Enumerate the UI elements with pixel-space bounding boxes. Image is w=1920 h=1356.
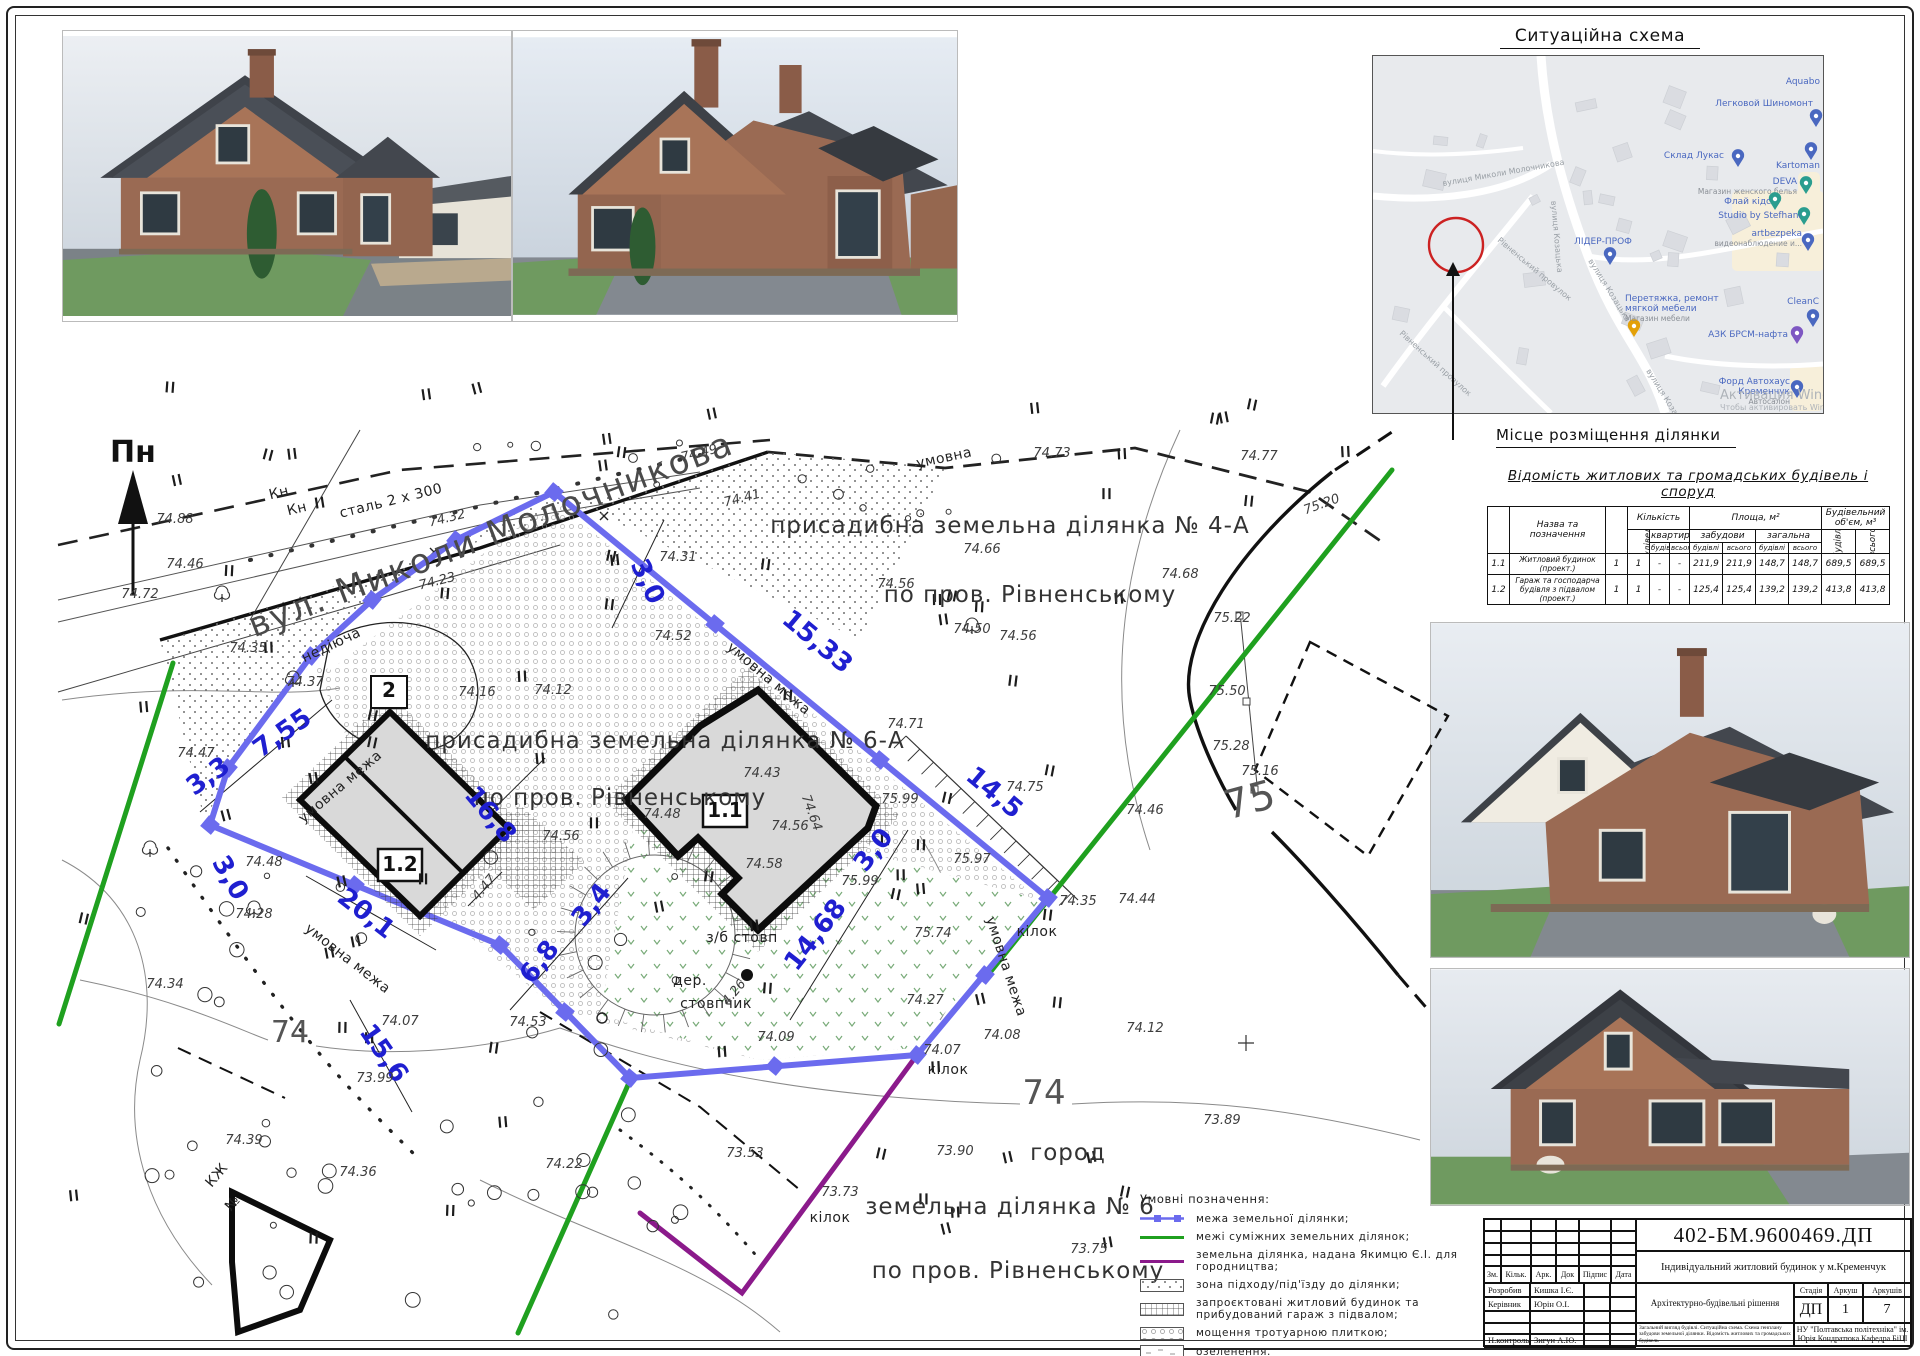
plan-label: 73.53 <box>726 1146 763 1161</box>
plan-label: 73.99 <box>356 1071 393 1086</box>
tb-name <box>1530 1323 1584 1334</box>
plan-label: 74.34 <box>146 977 183 992</box>
title-block-cell <box>1610 1346 1636 1348</box>
legend-item: межі суміжних земель­них ділянок; <box>1140 1231 1470 1244</box>
plan-label: 75.99 <box>881 792 918 807</box>
tb-stage-label: Стадія <box>1794 1283 1828 1297</box>
legend-item: мощення тротуарною плиткою; <box>1140 1327 1470 1340</box>
plan-label: 75.22 <box>1213 611 1250 626</box>
tb-stage-value: ДП <box>1794 1297 1828 1323</box>
legend-label: зона підходу/під'їзду до ділянки; <box>1196 1279 1400 1291</box>
tb-header-0: Зм. <box>1484 1266 1501 1283</box>
survey-cross <box>1238 1035 1254 1051</box>
plan-label: 75.20 <box>1302 491 1342 518</box>
plan-label: 74.44 <box>1118 892 1155 907</box>
tb-organization: НУ "Полтавська політехніка" ім. Юрія Кон… <box>1794 1323 1911 1346</box>
plan-label: 74.88 <box>156 512 193 527</box>
legend-symbol-stip <box>1140 1279 1184 1292</box>
title-block-cell <box>1610 1323 1636 1334</box>
plan-label: 73.73 <box>821 1185 858 1200</box>
tb-name: Зигун А.Ю. <box>1530 1334 1584 1346</box>
plan-label: 1.1 <box>707 798 742 822</box>
plan-label: 74.16 <box>458 685 495 700</box>
plan-label: 74.27 <box>906 993 944 1008</box>
plan-label: Кн <box>267 483 290 503</box>
title-block-cell <box>1584 1323 1610 1334</box>
bold-contour-75 <box>1189 472 1398 975</box>
tb-contents-note: Загальний вигляд будівлі. Ситуаційна схе… <box>1636 1323 1794 1346</box>
tb-name: Семко О.В. <box>1530 1346 1584 1348</box>
tb-sheet-label: Аркуш <box>1828 1283 1863 1297</box>
plan-label: 74.09 <box>757 1030 794 1045</box>
plan-label: 74.75 <box>1006 780 1043 795</box>
plan-label: 74.50 <box>953 622 990 637</box>
drawing-sheet: Ситуаційна схема вулиця Козацькавулиця К… <box>0 0 1920 1356</box>
tb-name <box>1530 1311 1584 1323</box>
plan-label: 74.12 <box>534 683 571 698</box>
tb-role <box>1484 1311 1530 1323</box>
plan-label: 74.56 <box>877 577 914 592</box>
title-block-cell <box>1579 1255 1611 1266</box>
title-block-cell <box>1531 1219 1556 1231</box>
tb-sheets-total: 7 <box>1863 1297 1911 1323</box>
tb-section-title: Архітектурно-будівельні рішення <box>1636 1283 1794 1323</box>
title-block-cell <box>1484 1243 1501 1255</box>
plan-label: присадибна земельна ділянка № 4-А <box>770 513 1249 539</box>
legend-label: земельна ділянка, надана Якимцю Є.І. для… <box>1196 1249 1470 1273</box>
legend-label: мощення тротуарною плиткою; <box>1196 1327 1388 1339</box>
legend-symbol-purple <box>1140 1255 1184 1268</box>
tb-role <box>1484 1323 1530 1334</box>
plan-label: 73.90 <box>936 1144 973 1159</box>
title-block-cell <box>1531 1231 1556 1243</box>
plan-label: 74.53 <box>509 1015 546 1030</box>
plan-label: 74.37 <box>286 675 324 690</box>
legend-item: межа земельної ділянки; <box>1140 1212 1470 1225</box>
title-block-cell <box>1501 1255 1531 1266</box>
legend-symbol-greenery <box>1140 1345 1184 1356</box>
plan-label: город <box>1030 1140 1106 1166</box>
plan-label: кілок <box>1017 924 1058 940</box>
plan-label: 75 <box>1219 772 1280 830</box>
title-block-cell <box>1610 1283 1636 1297</box>
title-block-cell <box>1484 1219 1501 1231</box>
legend-symbol-blue <box>1140 1212 1184 1225</box>
plan-label: 74.73 <box>1033 446 1070 461</box>
title-block-cell <box>1611 1231 1636 1243</box>
tb-header-5: Дата <box>1611 1266 1636 1283</box>
plan-label: КЖ <box>202 1160 231 1190</box>
north-label: Пн <box>110 435 156 470</box>
plan-label: присадибна земельна ділянка № 6-А <box>425 728 904 754</box>
plan-label: 74 <box>1022 1073 1065 1113</box>
plan-label: 74.35 <box>1059 894 1096 909</box>
legend-label: межа земельної ділянки; <box>1196 1213 1349 1225</box>
legend-title: Умовні позначення: <box>1140 1192 1470 1206</box>
plan-label: 74.56 <box>542 829 579 844</box>
legend-item: земельна ділянка, надана Якимцю Є.І. для… <box>1140 1249 1470 1273</box>
title-block-cell <box>1484 1231 1501 1243</box>
plan-label: кілок <box>810 1210 851 1226</box>
plan-label: 74.46 <box>1126 803 1163 818</box>
plan-label: дер. <box>673 973 707 989</box>
plan-label: 74.35 <box>229 641 266 656</box>
plan-label: по пров. Рівненському <box>872 1258 1164 1284</box>
plan-label: земельна ділянка № 6 <box>865 1194 1155 1220</box>
tb-role: Розробив <box>1484 1283 1530 1297</box>
tb-header-1: Кільк. <box>1501 1266 1531 1283</box>
plan-label: Кн <box>285 499 308 519</box>
tb-sheets-label: Аркушів <box>1863 1283 1911 1297</box>
plan-label: з/б стовп <box>706 930 778 946</box>
plan-label: 1.2 <box>382 852 417 876</box>
title-block-cell <box>1584 1346 1610 1348</box>
plan-label: 74.52 <box>654 629 691 644</box>
title-block: Зм.Кільк.Арк.ДокПідписДатаРозробивКишка … <box>1483 1218 1912 1347</box>
tb-document-code: 402-БМ.9600469.ДП <box>1636 1219 1911 1251</box>
legend-item: озеленення. <box>1140 1345 1470 1356</box>
boundary-node <box>200 815 220 835</box>
plan-label: 75.28 <box>1212 739 1249 754</box>
title-block-cell <box>1579 1219 1611 1231</box>
legend-label: озеленення. <box>1196 1346 1271 1356</box>
plan-label: 74.46 <box>166 557 203 572</box>
plan-label: 74.43 <box>743 766 780 781</box>
title-block-cell <box>1579 1231 1611 1243</box>
tb-header-4: Підпис <box>1579 1266 1611 1283</box>
legend: Умовні позначення: межа земельної ділянк… <box>1140 1192 1470 1356</box>
title-block-cell <box>1556 1255 1579 1266</box>
plan-label: 75.74 <box>914 926 951 941</box>
title-block-cell <box>1584 1297 1610 1311</box>
plan-label: 74.39 <box>225 1133 262 1148</box>
legend-item: зона підходу/під'їзду до ділянки; <box>1140 1279 1470 1292</box>
title-block-cell <box>1556 1231 1579 1243</box>
plan-label: кілок <box>928 1062 969 1078</box>
legend-symbol-green <box>1140 1231 1184 1244</box>
plan-label: 73.89 <box>1203 1113 1240 1128</box>
title-block-cell <box>1611 1255 1636 1266</box>
tree-icon <box>214 586 229 602</box>
legend-symbol-grid <box>1140 1303 1184 1316</box>
plan-label: 74.07 <box>923 1043 961 1058</box>
plan-label: 74.66 <box>963 542 1000 557</box>
title-block-cell <box>1611 1243 1636 1255</box>
tb-header-3: Док <box>1556 1266 1579 1283</box>
plan-label: 74.31 <box>659 550 696 565</box>
title-block-cell <box>1531 1255 1556 1266</box>
tb-name: Кишка І.Є. <box>1530 1283 1584 1297</box>
title-block-cell <box>1610 1297 1636 1311</box>
plan-label: 74.22 <box>545 1157 582 1172</box>
neighbour-building-kzh <box>232 1192 330 1332</box>
title-block-cell <box>1556 1243 1579 1255</box>
site-plan: Пн вул. Миколи Молочниковаприсадибна зем… <box>0 0 1920 1356</box>
title-block-cell <box>1501 1231 1531 1243</box>
plan-label: стовпчик <box>680 996 752 1012</box>
north-arrow <box>118 470 148 595</box>
plan-label: 74.56 <box>999 629 1036 644</box>
tb-project-title: Індивідуальний житловий будинок у м.Крем… <box>1636 1251 1911 1283</box>
plan-label: по пров. Рівненському <box>884 582 1176 608</box>
title-block-cell <box>1610 1311 1636 1323</box>
plan-label: 2 <box>382 678 396 702</box>
tb-role: Керівник <box>1484 1297 1530 1311</box>
title-block-cell <box>1584 1311 1610 1323</box>
tb-role: Зав.кафедри <box>1484 1346 1530 1348</box>
plan-label: 74 <box>271 1015 309 1050</box>
plan-label: 75.97 <box>953 852 991 867</box>
plan-label: 74.08 <box>983 1028 1020 1043</box>
legend-label: межі суміжних земель­них ділянок; <box>1196 1231 1410 1243</box>
concrete-post <box>741 969 753 981</box>
plan-label: 74.48 <box>245 855 282 870</box>
bold-contour-dashed <box>1335 428 1430 1012</box>
title-block-cell <box>1611 1219 1636 1231</box>
plan-label: 74.58 <box>745 857 782 872</box>
plan-label: 74.77 <box>1240 449 1278 464</box>
tree-icon <box>142 841 157 857</box>
title-block-cell <box>1501 1219 1531 1231</box>
plan-label: 74.36 <box>339 1165 376 1180</box>
legend-label: запроєктовані житловий будинок та прибуд… <box>1196 1297 1470 1321</box>
title-block-cell <box>1556 1219 1579 1231</box>
title-block-cell <box>1531 1243 1556 1255</box>
legend-item: запроєктовані житловий будинок та прибуд… <box>1140 1297 1470 1321</box>
plan-label: 74.71 <box>887 717 924 732</box>
title-block-cell <box>1579 1243 1611 1255</box>
plan-label: 74.28 <box>235 907 272 922</box>
title-block-cell <box>1584 1334 1610 1346</box>
plan-label: 74.47 <box>177 746 215 761</box>
plan-label: 73.75 <box>1070 1242 1107 1257</box>
tb-sheet-number: 1 <box>1828 1297 1863 1323</box>
tb-header-2: Арк. <box>1531 1266 1556 1283</box>
plan-label: 75.50 <box>1208 684 1245 699</box>
tb-name: Юрін О.І. <box>1530 1297 1584 1311</box>
title-block-cell <box>1501 1243 1531 1255</box>
dashed-neighbour-building <box>1255 642 1448 856</box>
legend-symbol-pav <box>1140 1327 1184 1340</box>
tb-role: Н.контроль <box>1484 1334 1530 1346</box>
plan-label: 74.72 <box>121 587 158 602</box>
plan-label: 74.68 <box>1161 567 1198 582</box>
plan-label: 74.07 <box>381 1014 419 1029</box>
title-block-cell <box>1484 1255 1501 1266</box>
plan-label: 75.99 <box>841 874 878 889</box>
plan-label: 74.56 <box>771 819 808 834</box>
title-block-cell <box>1584 1283 1610 1297</box>
title-block-cell <box>1610 1334 1636 1346</box>
plan-label: 74.12 <box>1126 1021 1163 1036</box>
plan-label: 74.48 <box>643 807 680 822</box>
